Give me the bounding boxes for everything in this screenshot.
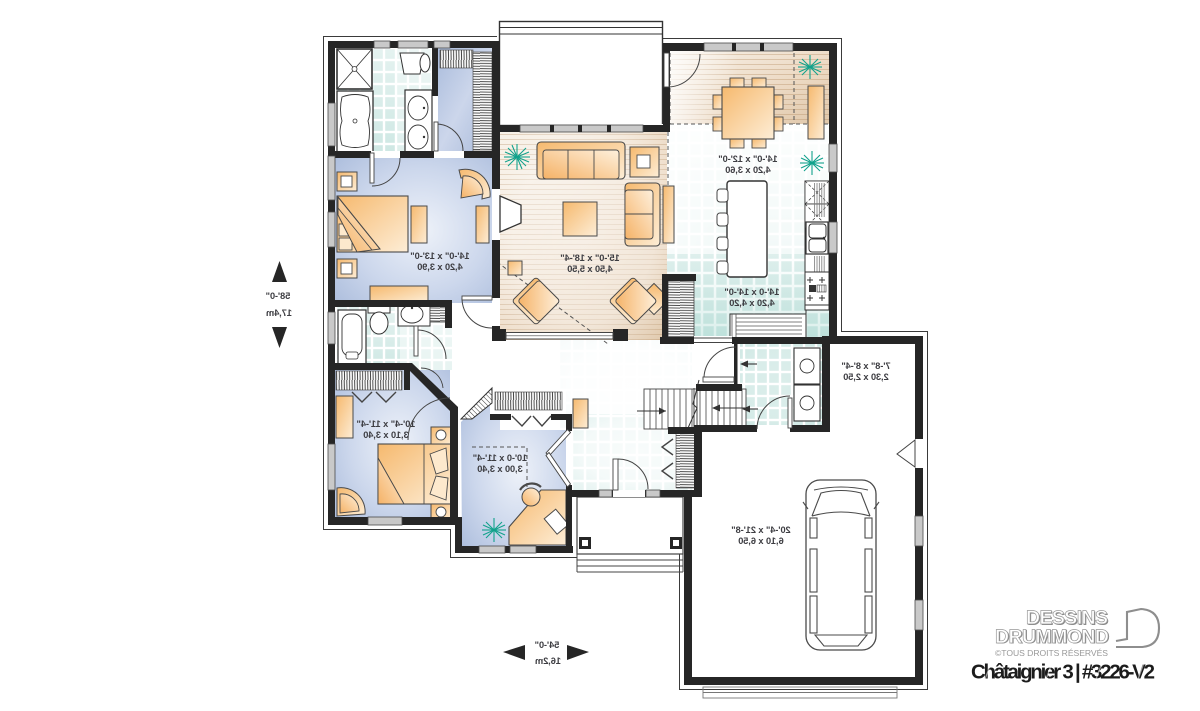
- svg-text:14'-0 x 14'-0": 14'-0 x 14'-0": [725, 287, 780, 297]
- svg-text:3,10 x 3,40: 3,10 x 3,40: [363, 430, 408, 440]
- svg-text:DRUMMOND: DRUMMOND: [995, 626, 1109, 648]
- svg-text:15'-0" x 18'-4": 15'-0" x 18'-4": [560, 253, 619, 263]
- svg-text:4,20 x 4,20: 4,20 x 4,20: [729, 298, 774, 308]
- svg-text:20'-4" x 21'-8": 20'-4" x 21'-8": [731, 525, 790, 535]
- svg-text:2,30 x 2,50: 2,30 x 2,50: [843, 372, 888, 382]
- svg-text:54'-0": 54'-0": [535, 640, 560, 650]
- svg-text:14'-0" x 12'-0": 14'-0" x 12'-0": [718, 154, 777, 164]
- svg-text:4,50 x 5,50: 4,50 x 5,50: [567, 264, 612, 274]
- svg-text:58'-0": 58'-0": [266, 291, 291, 301]
- svg-text:©TOUS DROITS RÉSERVÉS: ©TOUS DROITS RÉSERVÉS: [995, 648, 1108, 658]
- svg-text:16,2m: 16,2m: [535, 656, 561, 666]
- svg-text:4,20 x 3,90: 4,20 x 3,90: [417, 262, 462, 272]
- svg-text:Châtaignier 3 | #3226-V2: Châtaignier 3 | #3226-V2: [971, 661, 1155, 684]
- svg-text:3,00 x 3,40: 3,00 x 3,40: [477, 464, 522, 474]
- svg-text:6,10 x 6,50: 6,10 x 6,50: [738, 536, 783, 546]
- svg-text:17,4m: 17,4m: [266, 308, 292, 318]
- svg-text:10'-0 x 11'-4": 10'-0 x 11'-4": [473, 453, 527, 463]
- svg-text:10'-4" x 11'-4": 10'-4" x 11'-4": [357, 419, 416, 429]
- svg-text:14'-0" x 13'-0": 14'-0" x 13'-0": [410, 251, 469, 261]
- svg-text:7'-8" x 8'-4": 7'-8" x 8'-4": [841, 361, 890, 371]
- svg-text:4,20 x 3,60: 4,20 x 3,60: [725, 165, 770, 175]
